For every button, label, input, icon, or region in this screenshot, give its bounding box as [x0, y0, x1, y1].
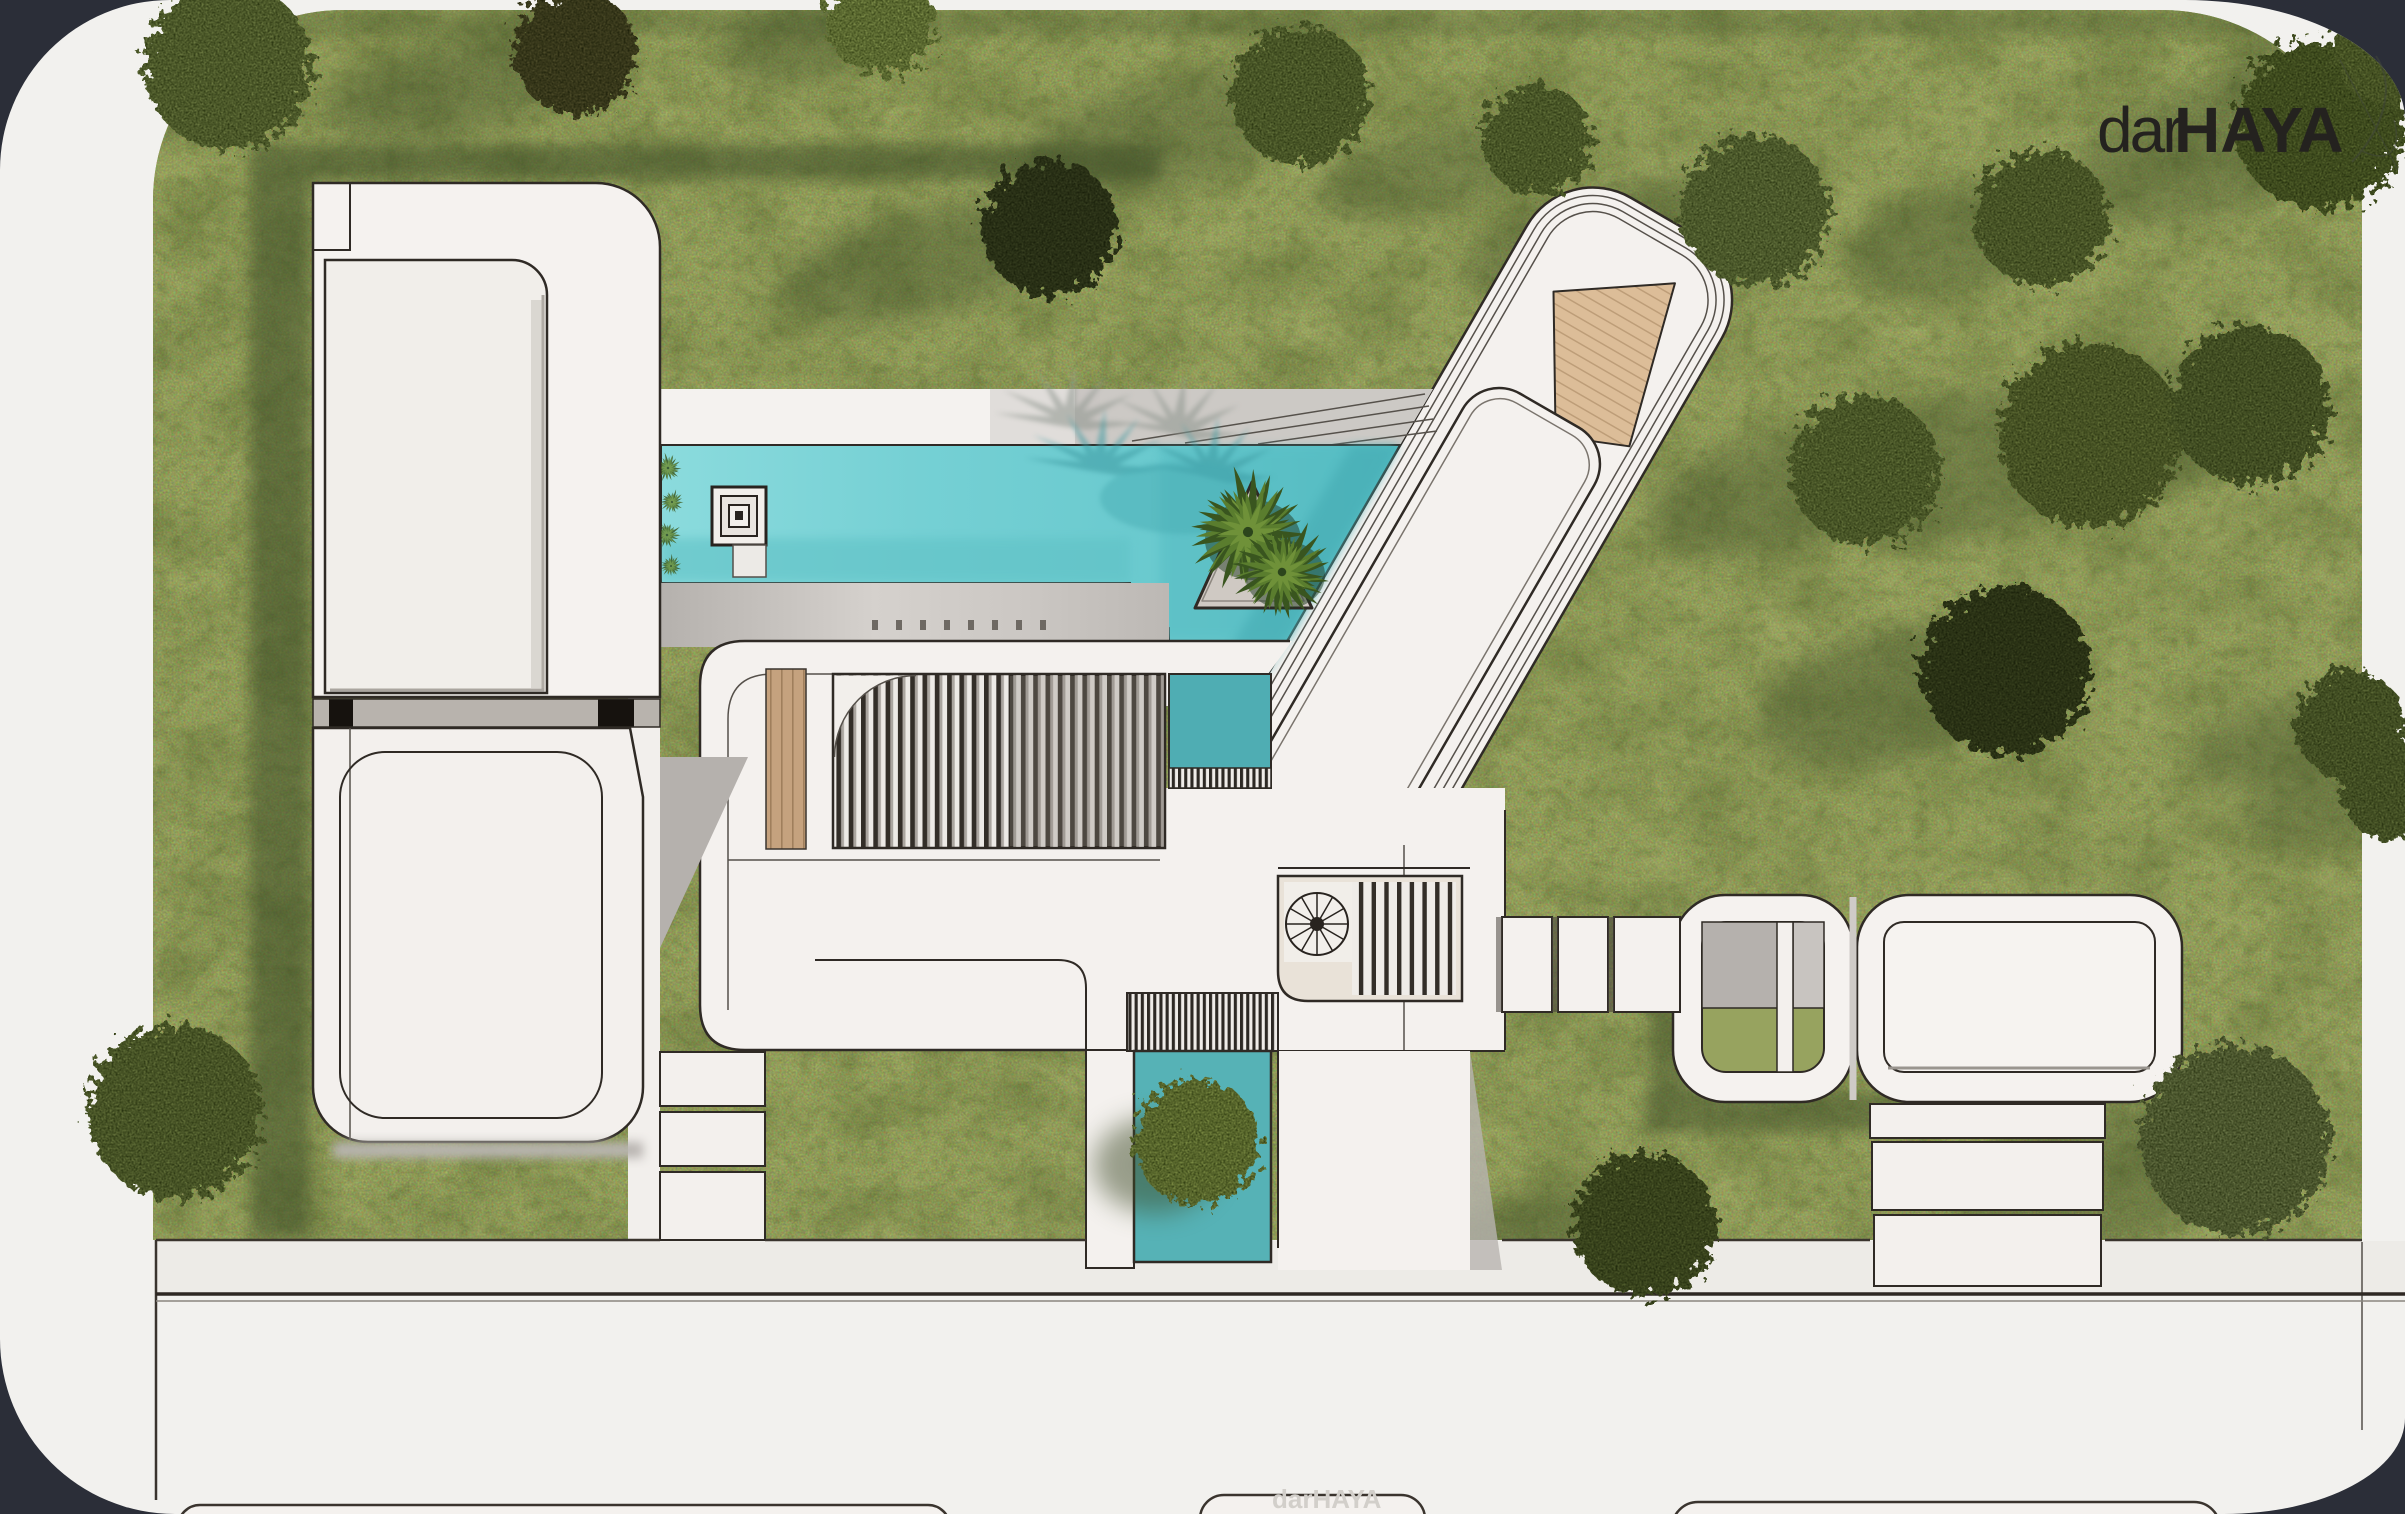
- svg-text:HAYA: HAYA: [2174, 94, 2344, 166]
- svg-text:darHAYA: darHAYA: [1272, 1484, 1382, 1514]
- svg-text:dar: dar: [2097, 94, 2183, 166]
